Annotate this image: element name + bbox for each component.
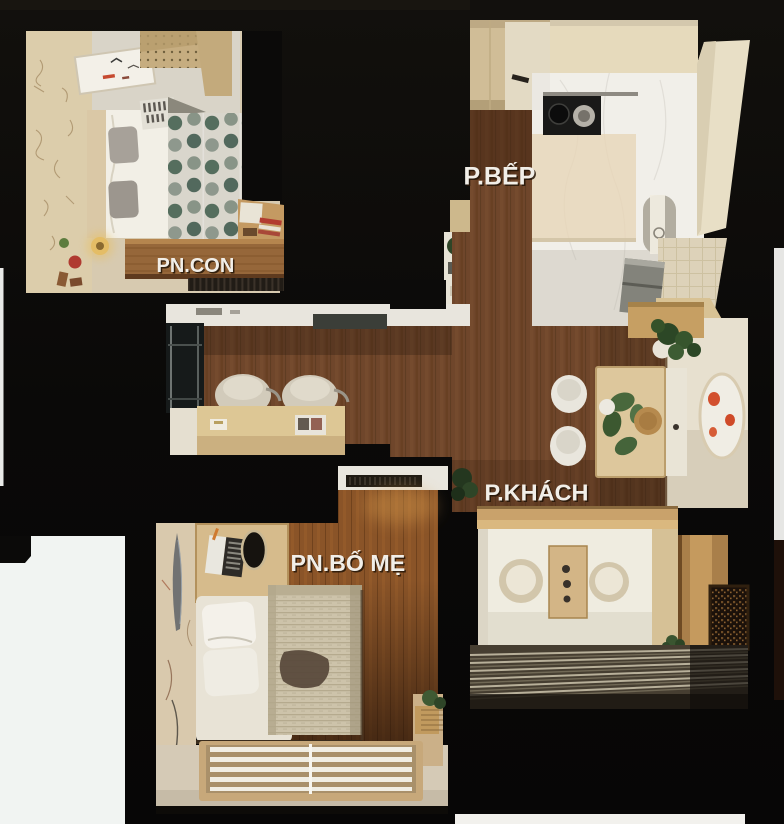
svg-text:P.KHÁCH: P.KHÁCH — [485, 479, 589, 506]
svg-text:PN.CON: PN.CON — [157, 255, 235, 277]
svg-text:P.BẾP: P.BẾP — [464, 162, 536, 191]
svg-text:PN.BỐ MẸ: PN.BỐ MẸ — [291, 549, 406, 576]
